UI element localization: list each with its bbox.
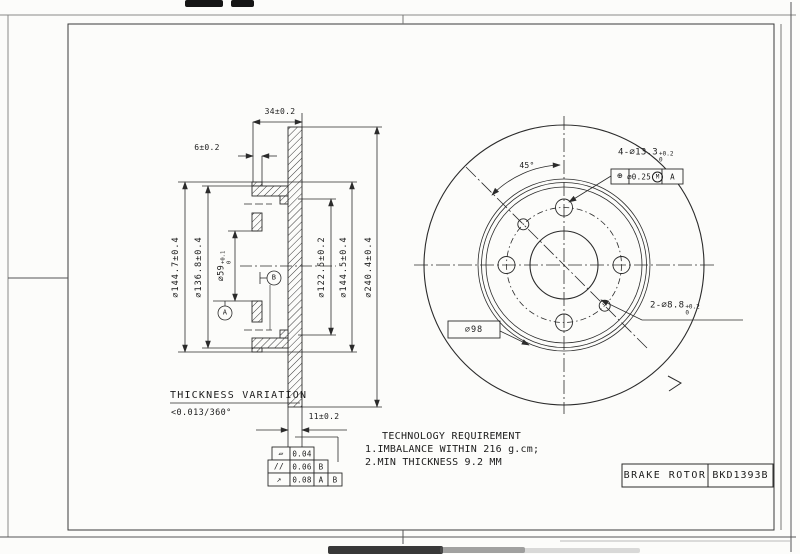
part-number: BKD1393B (712, 471, 768, 481)
bolt-holes-callout: 4-∅13.3+0.20 (618, 149, 673, 164)
datum-a-label: A (223, 310, 228, 317)
parallelism-symbol-icon: // (274, 463, 284, 471)
datum-b-label: B (272, 275, 277, 282)
parallelism-value: 0.06 (292, 463, 311, 471)
dim-total-width: 34±0.2 (265, 108, 296, 116)
bolt-circle-label: ∅98 (465, 325, 483, 334)
dim-dia-144-7: ∅144.7±0.4 (172, 236, 181, 297)
position-tolerance: ∅0.25M (627, 172, 663, 183)
dim-dia-59-bore: ∅59+0.10 (218, 251, 233, 282)
tech-requirement-item-2: 2.MIN THICKNESS 9.2 MM (365, 458, 502, 468)
flatness-value: 0.04 (292, 450, 311, 458)
position-datum: A (670, 173, 675, 181)
flatness-symbol-icon: ▱ (278, 450, 283, 458)
dim-disc-thickness: 11±0.2 (309, 413, 340, 421)
runout-datum-1: A (319, 476, 324, 484)
rotation-direction-mark (668, 376, 681, 391)
position-symbol-icon: ⊕ (617, 172, 623, 181)
pin-holes-callout: 2-∅8.8+0.20 (650, 302, 700, 317)
part-name: BRAKE ROTOR (624, 471, 707, 481)
dim-flange-thickness: 6±0.2 (194, 144, 220, 152)
tech-requirement-item-1: 1.IMBALANCE WITHIN 216 g.cm; (365, 445, 539, 455)
runout-symbol-icon: ↗ (276, 476, 281, 484)
runout-value: 0.08 (292, 476, 311, 484)
dim-dia-122-5: ∅122.5±0.2 (318, 236, 327, 297)
thickness-variation-value: <0.013/360° (171, 409, 232, 418)
runout-datum-2: B (333, 476, 338, 484)
drawing-sheet: 34±0.2 6±0.2 11±0.2 ∅144.7±0.4 ∅136.8±0.… (0, 0, 800, 554)
angle-45-label: 45° (519, 162, 534, 170)
dim-dia-144-5: ∅144.5±0.4 (340, 236, 349, 297)
front-view-geometry (414, 116, 743, 414)
parallelism-datum: B (319, 463, 324, 471)
dim-dia-240-4: ∅240.4±0.4 (365, 236, 374, 297)
tech-requirement-title: TECHNOLOGY REQUIREMENT (382, 432, 521, 442)
thickness-variation-note: THICKNESS VARIATION (170, 391, 307, 401)
section-view-part (252, 127, 302, 407)
dim-dia-136-8: ∅136.8±0.4 (195, 236, 204, 297)
mmc-modifier-icon: M (652, 172, 663, 183)
